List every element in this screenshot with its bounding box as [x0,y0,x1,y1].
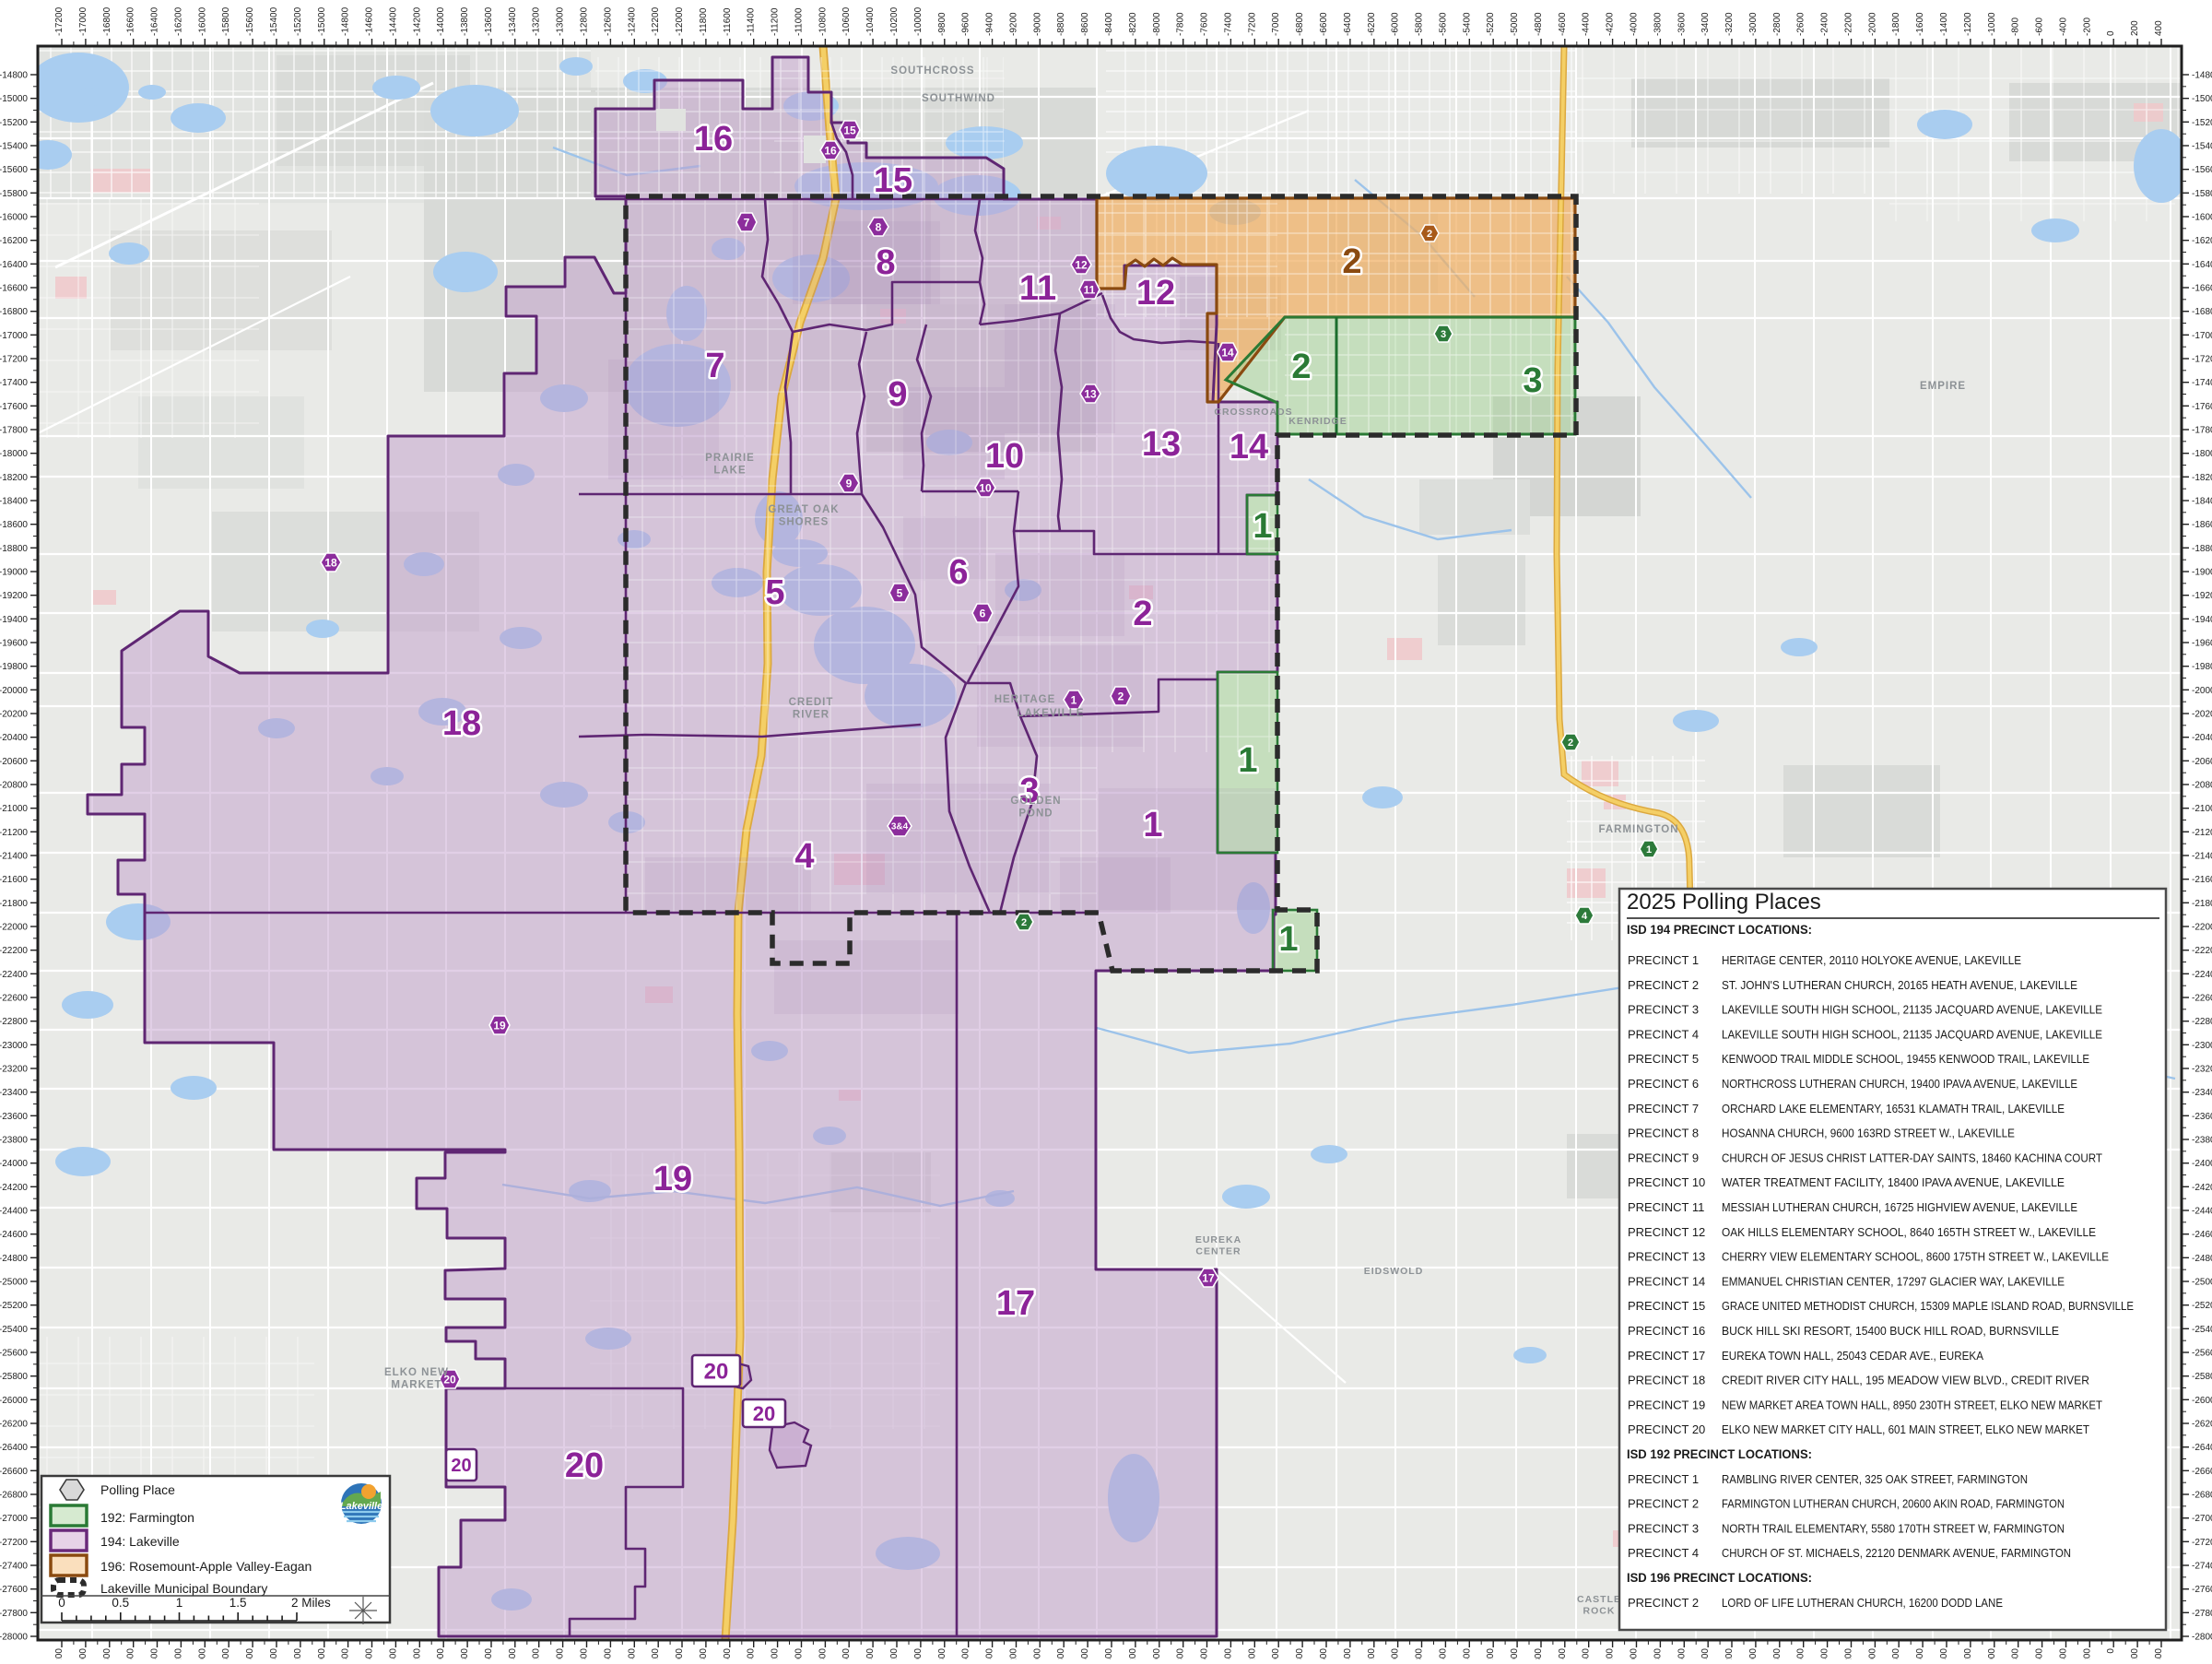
svg-text:-24600: -24600 [2192,1230,2212,1240]
svg-text:-15400: -15400 [269,6,279,36]
svg-text:7: 7 [744,216,750,229]
svg-text:-17600: -17600 [2192,402,2212,412]
svg-text:-14600: -14600 [365,1648,375,1659]
svg-text:-16600: -16600 [126,1648,136,1659]
svg-text:0.5: 0.5 [112,1596,129,1610]
svg-text:-15200: -15200 [0,118,28,128]
svg-text:-3400: -3400 [1700,12,1711,36]
svg-text:-19000: -19000 [2192,568,2212,578]
svg-text:-25200: -25200 [2192,1301,2212,1311]
svg-text:-20800: -20800 [2192,781,2212,791]
svg-text:-11800: -11800 [699,7,709,36]
svg-text:EUREKA TOWN HALL, 25043 CEDAR: EUREKA TOWN HALL, 25043 CEDAR AVE., EURE… [1722,1350,1984,1363]
svg-text:0: 0 [2106,1648,2116,1654]
svg-text:PRECINCT 9: PRECINCT 9 [1628,1151,1699,1164]
svg-text:PRECINCT 16: PRECINCT 16 [1628,1324,1705,1338]
svg-text:-9400: -9400 [985,12,995,36]
svg-text:-1600: -1600 [1915,12,1925,36]
svg-text:-14400: -14400 [388,6,398,36]
svg-text:-19800: -19800 [2192,662,2212,672]
svg-text:CREDIT: CREDIT [789,697,834,708]
svg-text:1.5: 1.5 [229,1596,247,1610]
svg-text:-22800: -22800 [2192,1017,2212,1027]
svg-text:-24400: -24400 [0,1207,28,1217]
svg-text:POND: POND [1018,808,1053,820]
svg-text:-27800: -27800 [2192,1609,2212,1619]
svg-text:MESSIAH LUTHERAN CHURCH, 16725: MESSIAH LUTHERAN CHURCH, 16725 HIGHVIEW … [1722,1201,2077,1214]
svg-text:PRECINCT 3: PRECINCT 3 [1628,1521,1699,1535]
svg-text:2: 2 [1342,242,1361,281]
svg-text:GRACE UNITED METHODIST CHURCH,: GRACE UNITED METHODIST CHURCH, 15309 MAP… [1722,1300,2134,1313]
svg-text:-16600: -16600 [2192,284,2212,294]
svg-text:3&4: 3&4 [891,822,909,832]
svg-text:-22600: -22600 [0,994,28,1004]
svg-text:-14200: -14200 [412,1648,422,1659]
svg-text:-3800: -3800 [1653,12,1663,36]
svg-text:-15000: -15000 [317,6,327,36]
svg-text:ISD 192 PRECINCT LOCATIONS:: ISD 192 PRECINCT LOCATIONS: [1627,1447,1812,1461]
svg-text:PRECINCT 17: PRECINCT 17 [1628,1349,1705,1363]
svg-text:-800: -800 [2011,18,2021,36]
svg-text:PRECINCT 14: PRECINCT 14 [1628,1274,1705,1288]
svg-text:ISD 196 PRECINCT LOCATIONS:: ISD 196 PRECINCT LOCATIONS: [1627,1571,1812,1585]
svg-text:KENRIDGE: KENRIDGE [1288,416,1347,427]
svg-text:LAKEVILLE SOUTH HIGH SCHOOL, 2: LAKEVILLE SOUTH HIGH SCHOOL, 21135 JACQU… [1722,1004,2102,1017]
svg-text:PRECINCT 4: PRECINCT 4 [1628,1546,1699,1560]
svg-text:400: 400 [2154,20,2164,36]
svg-text:-9400: -9400 [985,1648,995,1659]
svg-text:-2400: -2400 [1820,12,1830,36]
svg-text:0: 0 [58,1596,65,1610]
svg-text:-21400: -21400 [2192,852,2212,862]
svg-text:20: 20 [565,1446,604,1485]
svg-text:-5200: -5200 [1486,12,1496,36]
svg-text:-25400: -25400 [2192,1325,2212,1335]
svg-text:15: 15 [843,124,856,136]
svg-text:-26200: -26200 [2192,1420,2212,1430]
svg-text:-13000: -13000 [556,1648,566,1659]
svg-text:2: 2 [1021,917,1027,928]
svg-text:-4000: -4000 [1630,1648,1640,1659]
svg-text:-5000: -5000 [1510,1648,1520,1659]
svg-text:-11600: -11600 [723,7,733,36]
svg-text:-20400: -20400 [2192,733,2212,743]
svg-text:-5000: -5000 [1510,12,1520,36]
svg-text:ISD 194 PRECINCT LOCATIONS:: ISD 194 PRECINCT LOCATIONS: [1627,923,1812,937]
svg-text:-10000: -10000 [913,1648,924,1659]
svg-text:-23000: -23000 [2192,1041,2212,1051]
svg-text:-19800: -19800 [0,662,28,672]
svg-text:-23600: -23600 [2192,1112,2212,1122]
svg-text:-200: -200 [2082,18,2092,36]
svg-text:13: 13 [1142,425,1181,464]
svg-text:CROSSROADS: CROSSROADS [1214,407,1292,418]
svg-text:-26000: -26000 [0,1396,28,1406]
svg-text:-10800: -10800 [818,6,828,36]
svg-text:-12600: -12600 [603,1648,613,1659]
svg-text:-3200: -3200 [1724,1648,1735,1659]
svg-text:-2800: -2800 [1772,1648,1783,1659]
svg-text:11: 11 [1084,283,1096,296]
svg-text:-27800: -27800 [0,1609,28,1619]
svg-text:-15600: -15600 [245,6,255,36]
svg-text:-23000: -23000 [0,1041,28,1051]
svg-text:-20200: -20200 [2192,710,2212,720]
svg-text:16: 16 [694,120,733,159]
svg-text:-4400: -4400 [1582,1648,1592,1659]
svg-text:-17800: -17800 [0,426,28,436]
svg-text:-15400: -15400 [0,142,28,152]
svg-text:-15400: -15400 [2192,142,2212,152]
svg-text:PRECINCT 19: PRECINCT 19 [1628,1398,1705,1411]
svg-text:-22000: -22000 [0,923,28,933]
svg-text:-25600: -25600 [2192,1349,2212,1359]
svg-text:-7000: -7000 [1271,12,1281,36]
svg-text:-21600: -21600 [0,875,28,885]
svg-text:-12800: -12800 [580,1648,590,1659]
svg-text:-17400: -17400 [2192,378,2212,388]
svg-text:-14400: -14400 [388,1648,398,1659]
svg-text:HOSANNA CHURCH, 9600 163RD STR: HOSANNA CHURCH, 9600 163RD STREET W., LA… [1722,1127,2015,1140]
svg-text:FARMINGTON LUTHERAN CHURCH, 20: FARMINGTON LUTHERAN CHURCH, 20600 AKIN R… [1722,1498,2065,1511]
svg-text:-28000: -28000 [2192,1633,2212,1643]
svg-text:-19600: -19600 [0,639,28,649]
svg-text:SOUTHCROSS: SOUTHCROSS [890,65,974,77]
svg-text:-6400: -6400 [1343,12,1353,36]
svg-text:8: 8 [876,243,895,282]
svg-text:196: Rosemount-Apple Valley-Ea: 196: Rosemount-Apple Valley-Eagan [100,1559,312,1574]
svg-text:-26400: -26400 [0,1443,28,1453]
svg-text:-19200: -19200 [0,591,28,601]
svg-text:-800: -800 [2011,1648,2021,1659]
svg-text:CHURCH OF JESUS CHRIST LATTER-: CHURCH OF JESUS CHRIST LATTER-DAY SAINTS… [1722,1151,2102,1164]
svg-text:ELKO NEW: ELKO NEW [384,1367,449,1378]
svg-text:SHORES: SHORES [779,517,829,528]
svg-text:1: 1 [1278,920,1298,959]
svg-text:-2600: -2600 [1796,12,1806,36]
svg-text:Lakeville: Lakeville [340,1501,382,1512]
svg-text:-13200: -13200 [532,1648,542,1659]
svg-text:-15800: -15800 [221,6,231,36]
svg-text:-22200: -22200 [0,946,28,956]
svg-text:2: 2 [1291,348,1311,386]
svg-text:194: Lakeville: 194: Lakeville [100,1534,180,1549]
svg-text:PRECINCT 1: PRECINCT 1 [1628,1472,1699,1486]
svg-text:-9600: -9600 [961,1648,971,1659]
svg-text:-5600: -5600 [1438,1648,1448,1659]
svg-text:-18800: -18800 [0,544,28,554]
svg-text:-8600: -8600 [1080,12,1090,36]
svg-text:-9000: -9000 [1032,1648,1042,1659]
svg-text:-10000: -10000 [913,6,924,36]
svg-text:18: 18 [442,704,481,743]
svg-text:2025 Polling Places: 2025 Polling Places [1627,890,1821,915]
svg-text:-18800: -18800 [2192,544,2212,554]
svg-text:-9800: -9800 [937,1648,947,1659]
svg-text:1: 1 [1071,693,1077,706]
svg-text:-24800: -24800 [0,1254,28,1264]
svg-text:-8800: -8800 [1056,1648,1066,1659]
svg-text:-17200: -17200 [54,6,65,36]
svg-text:PRECINCT 11: PRECINCT 11 [1628,1200,1704,1214]
svg-text:19: 19 [653,1160,692,1198]
svg-text:RAMBLING RIVER CENTER, 325 OAK: RAMBLING RIVER CENTER, 325 OAK STREET, F… [1722,1473,2028,1486]
svg-text:11: 11 [1019,269,1056,308]
svg-text:1: 1 [1646,844,1652,856]
svg-text:-15200: -15200 [293,6,303,36]
svg-text:-16000: -16000 [0,213,28,223]
svg-text:-4200: -4200 [1606,1648,1616,1659]
svg-text:-15600: -15600 [2192,165,2212,175]
svg-text:-11200: -11200 [771,1648,781,1659]
svg-text:-15800: -15800 [2192,189,2212,199]
svg-text:-6200: -6200 [1367,12,1377,36]
svg-text:200: 200 [2130,20,2140,36]
svg-text:-15000: -15000 [2192,94,2212,104]
svg-text:-400: -400 [2059,1648,2069,1659]
svg-text:-11600: -11600 [723,1648,733,1659]
svg-text:-1200: -1200 [1963,1648,1973,1659]
svg-text:CASTLE: CASTLE [1577,1594,1621,1605]
svg-text:-27400: -27400 [0,1562,28,1572]
svg-text:-17000: -17000 [0,331,28,341]
svg-text:MARKET: MARKET [391,1380,441,1391]
svg-text:-27200: -27200 [2192,1538,2212,1548]
svg-text:-20000: -20000 [0,686,28,696]
svg-text:-16800: -16800 [0,307,28,317]
svg-text:CENTER: CENTER [1195,1246,1241,1257]
svg-text:KENWOOD TRAIL MIDDLE SCHOOL, 1: KENWOOD TRAIL MIDDLE SCHOOL, 19455 KENWO… [1722,1053,2089,1066]
svg-text:PRECINCT 1: PRECINCT 1 [1628,953,1699,967]
svg-text:-17600: -17600 [0,402,28,412]
svg-text:-14800: -14800 [0,71,28,81]
svg-text:-11400: -11400 [747,1648,757,1659]
svg-text:-23600: -23600 [0,1112,28,1122]
svg-text:3: 3 [1523,361,1542,400]
svg-text:-20800: -20800 [0,781,28,791]
svg-text:-24600: -24600 [0,1230,28,1240]
svg-text:-7600: -7600 [1200,1648,1210,1659]
svg-text:9: 9 [888,375,907,414]
svg-text:-2600: -2600 [1796,1648,1806,1659]
svg-text:-4600: -4600 [1558,1648,1568,1659]
svg-text:-1800: -1800 [1891,12,1901,36]
svg-text:-21400: -21400 [0,852,28,862]
svg-text:HERITAGE CENTER, 20110 HOLYOKE: HERITAGE CENTER, 20110 HOLYOKE AVENUE, L… [1722,954,2021,967]
svg-text:-10200: -10200 [889,1648,900,1659]
svg-text:-21600: -21600 [2192,875,2212,885]
svg-text:-22400: -22400 [0,970,28,980]
svg-text:-21000: -21000 [2192,804,2212,814]
svg-text:-18400: -18400 [0,497,28,507]
svg-text:SOUTHWIND: SOUTHWIND [922,93,995,104]
svg-text:-8800: -8800 [1056,12,1066,36]
svg-text:10: 10 [985,437,1024,476]
svg-text:7: 7 [705,347,724,385]
svg-text:-10400: -10400 [865,6,876,36]
svg-text:-23200: -23200 [2192,1065,2212,1075]
svg-text:-16400: -16400 [150,6,160,36]
svg-text:-10400: -10400 [865,1648,876,1659]
svg-text:-17000: -17000 [78,6,88,36]
svg-text:-200: -200 [2082,1648,2092,1659]
svg-text:-19400: -19400 [2192,615,2212,625]
svg-text:-6000: -6000 [1391,1648,1401,1659]
svg-text:2: 2 [1568,738,1573,749]
svg-text:-11000: -11000 [794,7,805,36]
svg-text:-12600: -12600 [603,6,613,36]
svg-text:-3000: -3000 [1748,12,1759,36]
svg-text:-16400: -16400 [2192,260,2212,270]
svg-text:CHERRY VIEW ELEMENTARY SCHOOL,: CHERRY VIEW ELEMENTARY SCHOOL, 8600 175T… [1722,1251,2109,1264]
svg-text:-4400: -4400 [1582,12,1592,36]
svg-text:NORTHCROSS LUTHERAN CHURCH, 19: NORTHCROSS LUTHERAN CHURCH, 19400 IPAVA … [1722,1078,2077,1091]
svg-text:-16800: -16800 [2192,307,2212,317]
svg-text:-10200: -10200 [889,6,900,36]
svg-text:-25000: -25000 [2192,1278,2212,1288]
svg-text:-8000: -8000 [1152,1648,1162,1659]
svg-text:-15200: -15200 [293,1648,303,1659]
svg-text:0: 0 [2106,30,2116,36]
svg-text:-7000: -7000 [1271,1648,1281,1659]
svg-text:-27400: -27400 [2192,1562,2212,1572]
svg-text:-27600: -27600 [2192,1585,2212,1595]
svg-text:-20200: -20200 [0,710,28,720]
svg-text:-400: -400 [2059,18,2069,36]
svg-text:-27600: -27600 [0,1585,28,1595]
svg-text:-27000: -27000 [0,1514,28,1524]
svg-text:GOLDEN: GOLDEN [1010,796,1061,807]
svg-text:-8600: -8600 [1080,1648,1090,1659]
svg-text:-18600: -18600 [2192,520,2212,530]
svg-text:-600: -600 [2035,1648,2045,1659]
svg-text:-19400: -19400 [0,615,28,625]
svg-text:-8400: -8400 [1104,12,1114,36]
svg-text:-19000: -19000 [0,568,28,578]
svg-text:EUREKA: EUREKA [1195,1234,1241,1245]
svg-text:-2000: -2000 [1867,1648,1877,1659]
svg-text:1: 1 [176,1596,183,1610]
svg-text:-7800: -7800 [1176,12,1186,36]
svg-text:4: 4 [794,837,814,876]
svg-text:-600: -600 [2035,18,2045,36]
svg-text:-17800: -17800 [2192,426,2212,436]
svg-text:1: 1 [1238,741,1257,780]
svg-text:-7200: -7200 [1247,1648,1257,1659]
svg-text:-1000: -1000 [1987,1648,1997,1659]
svg-text:6: 6 [980,607,986,620]
svg-text:-25800: -25800 [2192,1372,2212,1382]
svg-text:-16400: -16400 [150,1648,160,1659]
svg-text:5: 5 [765,573,784,612]
svg-text:PRECINCT 12: PRECINCT 12 [1628,1225,1705,1239]
svg-text:LAKEVILLE SOUTH HIGH SCHOOL, 2: LAKEVILLE SOUTH HIGH SCHOOL, 21135 JACQU… [1722,1028,2102,1041]
svg-text:-27000: -27000 [2192,1514,2212,1524]
svg-text:PRECINCT 15: PRECINCT 15 [1628,1299,1705,1313]
svg-text:-13000: -13000 [556,6,566,36]
svg-text:-2200: -2200 [1844,1648,1854,1659]
svg-text:-20600: -20600 [0,757,28,767]
svg-text:-16800: -16800 [102,1648,112,1659]
svg-text:-13800: -13800 [460,6,470,36]
svg-text:4: 4 [1582,911,1588,922]
svg-text:-14000: -14000 [436,1648,446,1659]
svg-text:-11400: -11400 [747,7,757,36]
svg-text:2: 2 [1133,595,1152,633]
svg-text:-21000: -21000 [0,804,28,814]
svg-text:14: 14 [1221,346,1234,359]
svg-text:-3400: -3400 [1700,1648,1711,1659]
svg-text:-13200: -13200 [532,6,542,36]
svg-text:12: 12 [1136,274,1175,313]
svg-text:200: 200 [2130,1648,2140,1659]
svg-text:-4800: -4800 [1534,12,1544,36]
svg-text:-20600: -20600 [2192,757,2212,767]
svg-text:-12200: -12200 [651,6,661,36]
svg-text:-17200: -17200 [54,1648,65,1659]
svg-text:-14600: -14600 [365,6,375,36]
svg-text:12: 12 [1075,258,1088,271]
svg-text:CHURCH OF ST. MICHAELS, 22120: CHURCH OF ST. MICHAELS, 22120 DENMARK AV… [1722,1547,2071,1560]
svg-text:-9200: -9200 [1009,12,1019,36]
svg-text:-21800: -21800 [0,899,28,909]
svg-text:-8200: -8200 [1128,1648,1138,1659]
svg-text:PRECINCT 2: PRECINCT 2 [1628,1596,1699,1610]
svg-text:17: 17 [1202,1271,1215,1284]
svg-text:-6400: -6400 [1343,1648,1353,1659]
svg-text:PRECINCT 18: PRECINCT 18 [1628,1374,1705,1387]
svg-text:-12800: -12800 [580,6,590,36]
svg-text:WATER TREATMENT FACILITY, 1840: WATER TREATMENT FACILITY, 18400 IPAVA AV… [1722,1176,2065,1189]
svg-text:-16800: -16800 [102,6,112,36]
svg-text:-21200: -21200 [2192,828,2212,838]
svg-text:-15800: -15800 [221,1648,231,1659]
svg-text:PRECINCT 3: PRECINCT 3 [1628,1003,1699,1017]
svg-text:Polling Place: Polling Place [100,1482,175,1497]
svg-text:-14800: -14800 [341,1648,351,1659]
svg-text:-6600: -6600 [1319,1648,1329,1659]
svg-text:-22600: -22600 [2192,994,2212,1004]
svg-text:PRECINCT 7: PRECINCT 7 [1628,1102,1699,1115]
svg-text:LORD OF LIFE LUTHERAN CHURCH,: LORD OF LIFE LUTHERAN CHURCH, 16200 DODD… [1722,1597,2003,1610]
svg-text:-21200: -21200 [0,828,28,838]
svg-text:-23800: -23800 [0,1136,28,1146]
svg-text:-22200: -22200 [2192,946,2212,956]
svg-text:16: 16 [824,144,837,157]
svg-text:-17200: -17200 [2192,355,2212,365]
svg-text:-18400: -18400 [2192,497,2212,507]
svg-text:3: 3 [1441,329,1446,340]
svg-text:-22800: -22800 [0,1017,28,1027]
svg-text:-19200: -19200 [2192,591,2212,601]
svg-text:-5800: -5800 [1415,1648,1425,1659]
svg-text:-24000: -24000 [0,1159,28,1169]
svg-text:-24000: -24000 [2192,1159,2212,1169]
svg-text:ROCK: ROCK [1583,1606,1616,1617]
svg-text:-19600: -19600 [2192,639,2212,649]
svg-text:14: 14 [1230,428,1268,466]
svg-text:-18000: -18000 [0,449,28,459]
svg-text:-24800: -24800 [2192,1254,2212,1264]
svg-text:-25400: -25400 [0,1325,28,1335]
svg-text:192: Farmington: 192: Farmington [100,1510,194,1525]
svg-text:-23400: -23400 [2192,1088,2212,1098]
svg-text:-16200: -16200 [173,6,183,36]
svg-text:20: 20 [451,1456,471,1476]
svg-text:-3200: -3200 [1724,12,1735,36]
svg-text:-26800: -26800 [0,1491,28,1501]
svg-text:-16600: -16600 [126,6,136,36]
